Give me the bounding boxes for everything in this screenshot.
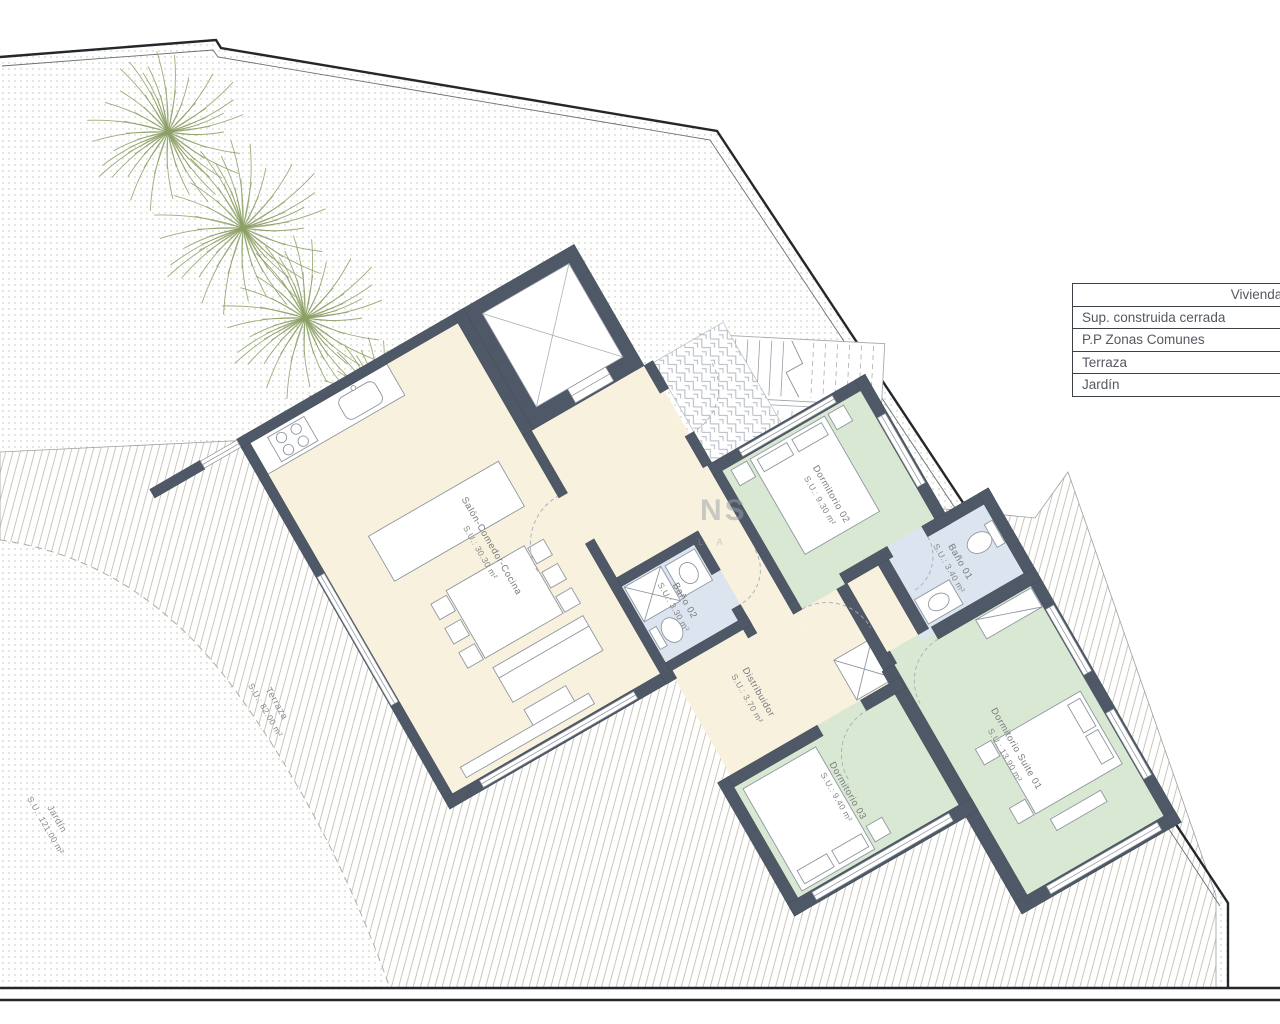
watermark-small-text: L A — [698, 537, 729, 547]
legend-row-zonas-comunes: P.P Zonas Comunes — [1073, 329, 1280, 352]
legend-row-title: Vivienda PB — [1073, 284, 1280, 307]
legend-row-terraza: Terraza — [1073, 352, 1280, 375]
floor-plan-canvas: Salón-Comedor-Cocina S.U.: 30.30 m² Dorm… — [0, 0, 1280, 1024]
legend-row-sup-construida: Sup. construida cerrada — [1073, 307, 1280, 330]
watermark-large-text: NS — [700, 494, 748, 527]
legend-row-jardin: Jardín — [1073, 374, 1280, 396]
legend-table: Vivienda PB Sup. construida cerrada P.P … — [1072, 283, 1280, 397]
